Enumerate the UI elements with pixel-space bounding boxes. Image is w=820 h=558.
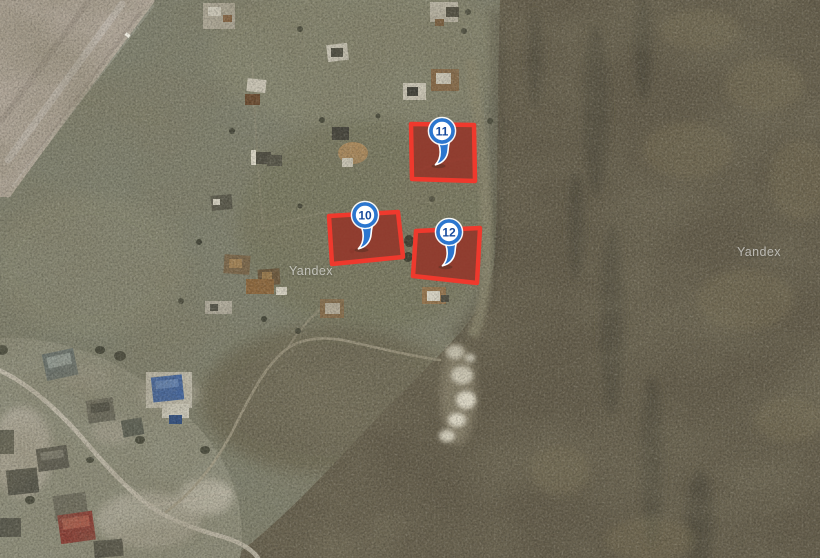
map-pin-11[interactable]: 11: [425, 116, 459, 169]
map-pin-12[interactable]: 12: [432, 217, 466, 270]
yandex-watermark: Yandex: [289, 264, 333, 278]
pin-number: 10: [358, 208, 372, 222]
markers-layer: Yandex Yandex 101112: [0, 0, 820, 558]
map-canvas[interactable]: Yandex Yandex 101112: [0, 0, 820, 558]
pin-number: 12: [442, 225, 456, 239]
map-pin-10[interactable]: 10: [348, 200, 382, 253]
yandex-watermark: Yandex: [737, 245, 781, 259]
pin-number: 11: [436, 124, 449, 138]
